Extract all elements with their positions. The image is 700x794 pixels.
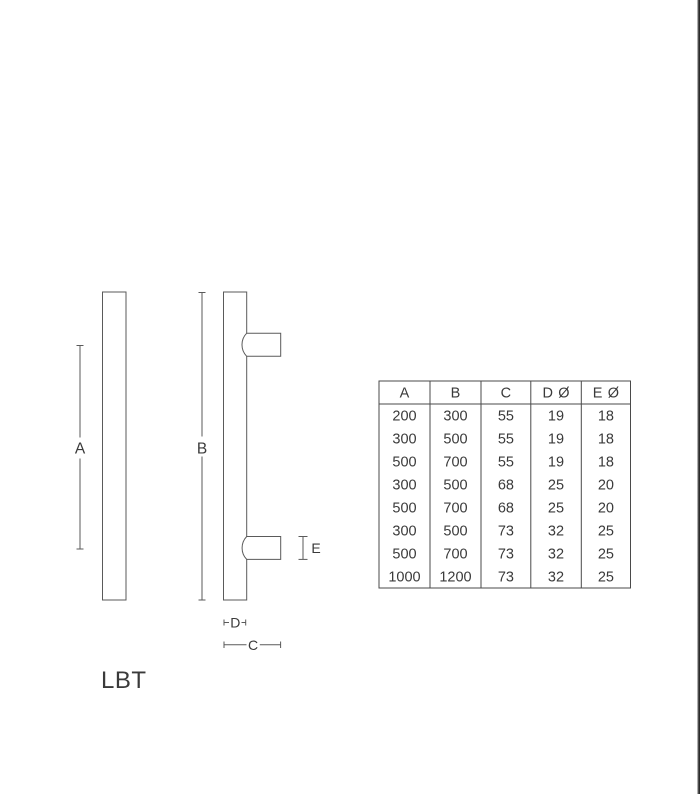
svg-text:55: 55 [498,432,514,448]
svg-text:25: 25 [598,524,614,540]
svg-text:500: 500 [443,524,467,540]
svg-text:32: 32 [548,570,564,586]
svg-text:19: 19 [548,409,564,425]
svg-text:C: C [248,637,258,653]
svg-text:300: 300 [392,524,416,540]
svg-text:73: 73 [498,547,514,563]
svg-text:A: A [75,441,86,458]
svg-text:32: 32 [548,524,564,540]
svg-text:300: 300 [443,409,467,425]
svg-text:25: 25 [548,501,564,517]
svg-text:18: 18 [598,409,614,425]
svg-text:700: 700 [443,501,467,517]
svg-text:68: 68 [498,478,514,494]
svg-text:D Ø: D Ø [543,386,570,402]
svg-text:73: 73 [498,524,514,540]
svg-text:25: 25 [598,570,614,586]
svg-text:300: 300 [392,432,416,448]
svg-text:1000: 1000 [388,570,420,586]
svg-text:B: B [451,386,461,402]
svg-text:32: 32 [548,547,564,563]
svg-text:18: 18 [598,432,614,448]
svg-text:1200: 1200 [439,570,471,586]
svg-text:C: C [501,386,511,402]
svg-text:700: 700 [443,547,467,563]
svg-text:E: E [311,540,320,556]
svg-text:25: 25 [548,478,564,494]
svg-text:19: 19 [548,432,564,448]
svg-text:20: 20 [598,501,614,517]
svg-text:73: 73 [498,570,514,586]
svg-text:A: A [400,386,410,402]
svg-text:18: 18 [598,455,614,471]
svg-text:700: 700 [443,455,467,471]
svg-text:300: 300 [392,478,416,494]
svg-text:500: 500 [392,455,416,471]
svg-text:E Ø: E Ø [593,386,619,402]
svg-text:B: B [197,441,207,458]
svg-text:500: 500 [392,547,416,563]
svg-text:500: 500 [443,432,467,448]
svg-text:55: 55 [498,409,514,425]
svg-text:200: 200 [392,409,416,425]
svg-text:68: 68 [498,501,514,517]
svg-text:25: 25 [598,547,614,563]
svg-text:500: 500 [392,501,416,517]
svg-text:19: 19 [548,455,564,471]
svg-text:20: 20 [598,478,614,494]
svg-text:500: 500 [443,478,467,494]
svg-text:55: 55 [498,455,514,471]
svg-text:D: D [230,615,240,631]
svg-text:LBT: LBT [101,667,147,694]
